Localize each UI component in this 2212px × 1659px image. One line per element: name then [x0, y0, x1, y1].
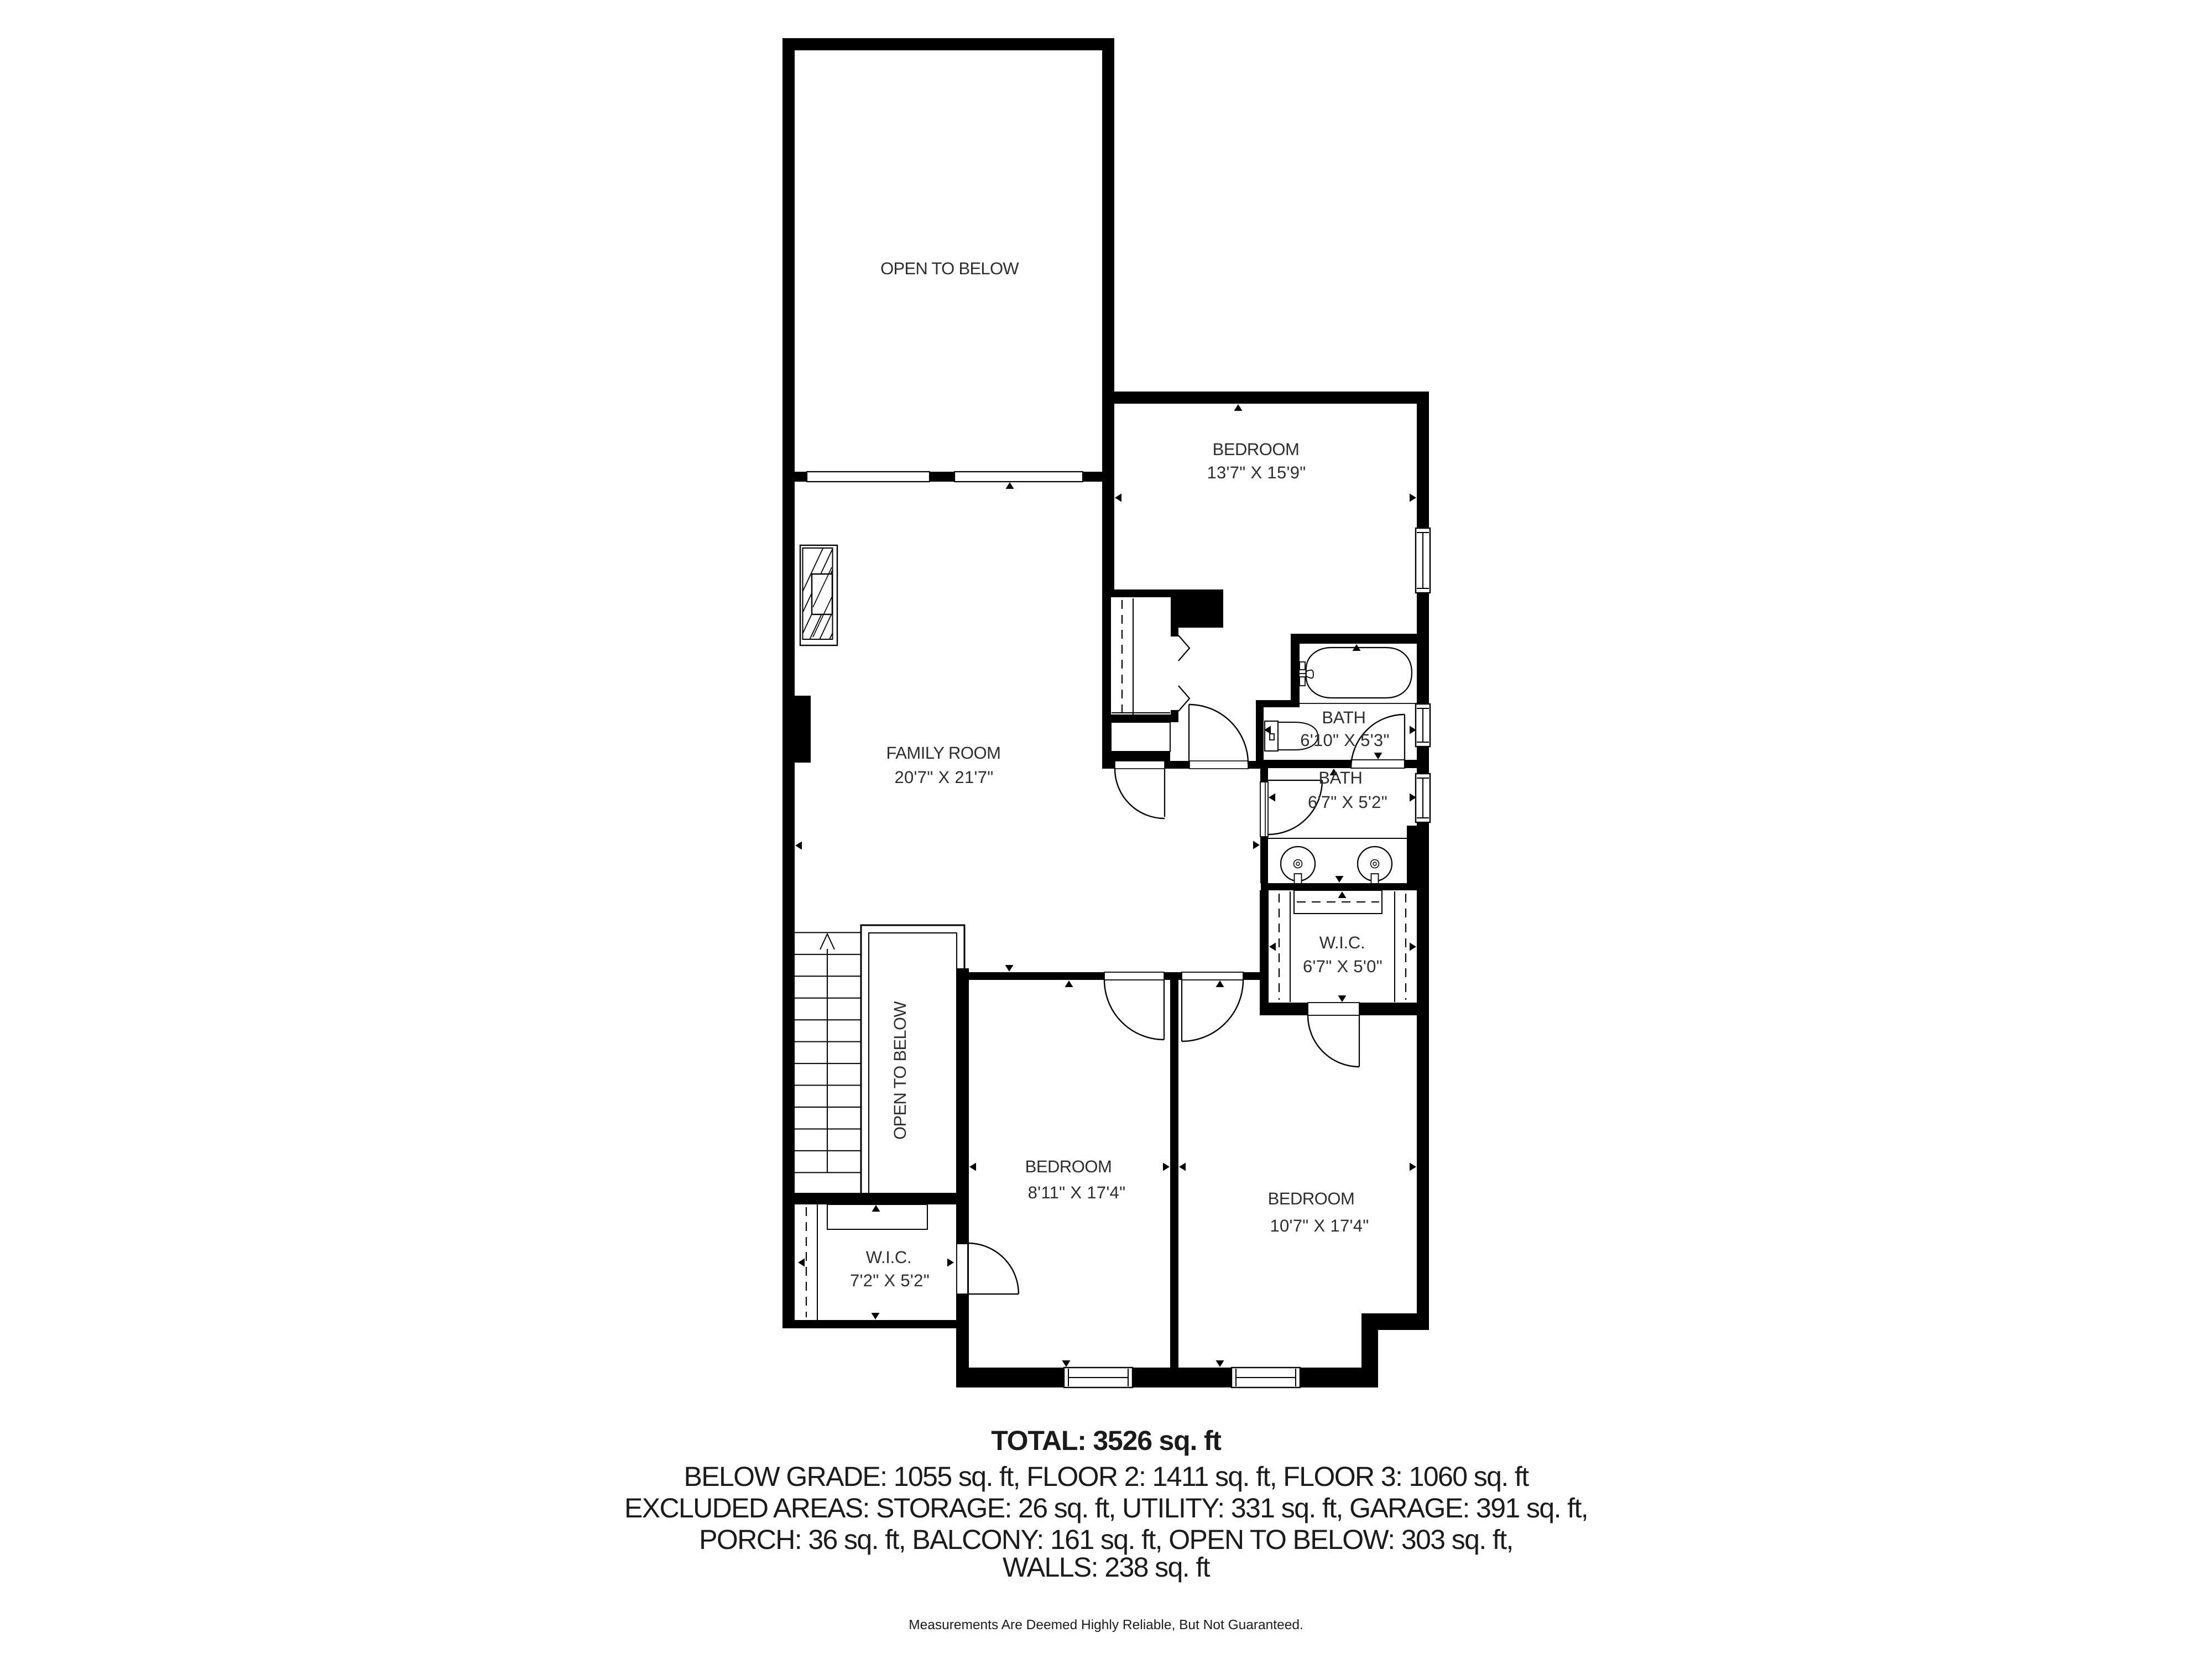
svg-text:PORCH: 36 sq. ft, BALCONY: 161: PORCH: 36 sq. ft, BALCONY: 161 sq. ft, O… — [699, 1524, 1513, 1555]
svg-text:10'7" X 17'4": 10'7" X 17'4" — [1270, 1216, 1369, 1235]
svg-text:Measurements Are Deemed Highly: Measurements Are Deemed Highly Reliable,… — [909, 1618, 1303, 1632]
svg-text:BEDROOM: BEDROOM — [1213, 440, 1300, 459]
svg-text:OPEN TO BELOW: OPEN TO BELOW — [880, 259, 1019, 278]
svg-text:WALLS: 238 sq. ft: WALLS: 238 sq. ft — [1003, 1552, 1211, 1583]
svg-text:BEDROOM: BEDROOM — [1025, 1157, 1112, 1176]
svg-text:BEDROOM: BEDROOM — [1268, 1189, 1355, 1208]
svg-text:20'7" X 21'7": 20'7" X 21'7" — [894, 768, 993, 787]
svg-text:BATH: BATH — [1322, 708, 1365, 727]
svg-text:W.I.C.: W.I.C. — [866, 1248, 912, 1267]
svg-text:6'7" X 5'0": 6'7" X 5'0" — [1303, 957, 1383, 976]
svg-text:W.I.C.: W.I.C. — [1319, 933, 1365, 952]
svg-text:FAMILY ROOM: FAMILY ROOM — [886, 743, 1001, 763]
svg-text:BELOW GRADE: 1055 sq. ft, FLOO: BELOW GRADE: 1055 sq. ft, FLOOR 2: 1411 … — [684, 1461, 1529, 1492]
svg-text:13'7" X 15'9": 13'7" X 15'9" — [1207, 463, 1306, 482]
svg-text:EXCLUDED AREAS: STORAGE: 26 sq: EXCLUDED AREAS: STORAGE: 26 sq. ft, UTIL… — [624, 1493, 1588, 1524]
svg-text:6'7" X 5'2": 6'7" X 5'2" — [1308, 792, 1387, 812]
svg-text:6'10" X 5'3": 6'10" X 5'3" — [1300, 731, 1390, 750]
svg-text:OPEN TO BELOW: OPEN TO BELOW — [890, 1001, 910, 1140]
svg-text:7'2" X 5'2": 7'2" X 5'2" — [850, 1271, 930, 1290]
svg-text:TOTAL: 3526 sq. ft: TOTAL: 3526 sq. ft — [991, 1425, 1222, 1456]
svg-text:BATH: BATH — [1318, 768, 1362, 787]
svg-text:8'11" X 17'4": 8'11" X 17'4" — [1028, 1183, 1126, 1202]
